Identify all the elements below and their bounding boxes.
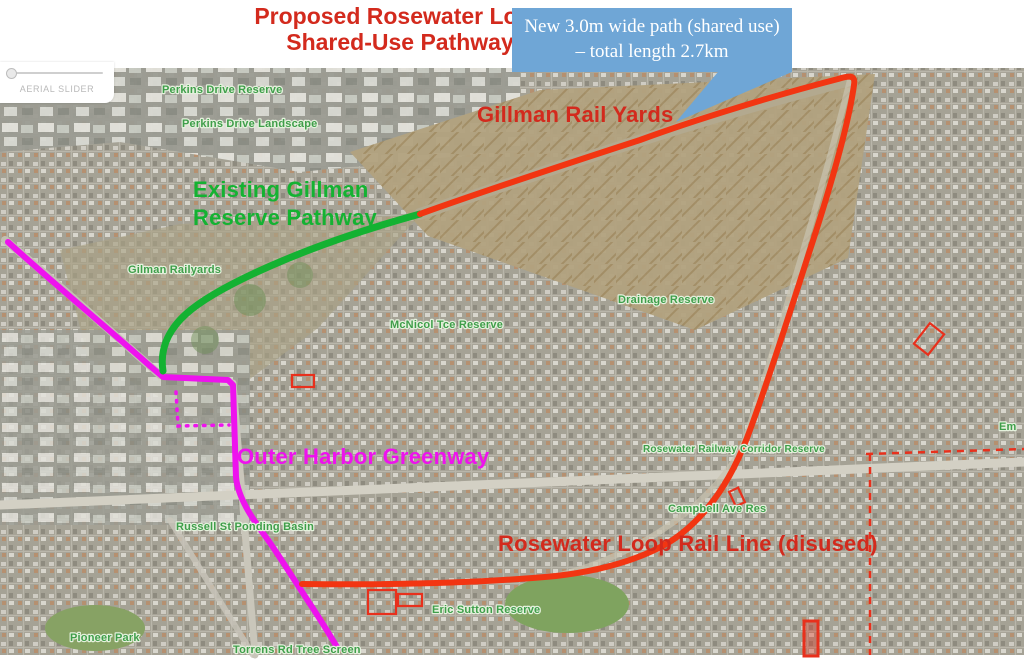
existing-pathway-label-line2: Reserve Pathway	[193, 205, 378, 230]
aerial-slider-label: AERIAL SLIDER	[0, 84, 114, 94]
callout-box: New 3.0m wide path (shared use) – total …	[512, 8, 792, 72]
marker-solid	[804, 621, 818, 656]
place-label: McNicol Tce Reserve	[390, 319, 503, 331]
place-label: Drainage Reserve	[618, 294, 714, 306]
place-label: Perkins Drive Reserve	[162, 84, 282, 96]
callout-text: New 3.0m wide path (shared use) – total …	[524, 15, 780, 64]
tree-patch	[234, 284, 266, 316]
place-label: Pioneer Park	[70, 632, 140, 644]
park-green-patch	[45, 605, 145, 651]
place-label: Rosewater Railway Corridor Reserve	[643, 444, 825, 455]
place-label: Campbell Ave Res	[668, 503, 766, 515]
aerial-map: Perkins Drive Reserve Perkins Drive Land…	[0, 0, 1024, 665]
place-label: Torrens Rd Tree Screen	[233, 644, 361, 656]
aerial-slider-widget: AERIAL SLIDER	[0, 62, 114, 103]
place-label: Perkins Drive Landscape	[182, 118, 317, 130]
aerial-slider-track[interactable]	[9, 72, 103, 74]
place-label: Eric Sutton Reserve	[432, 604, 540, 616]
rosewater-loop-label: Rosewater Loop Rail Line (disused)	[498, 531, 878, 556]
gillman-rail-yards-label: Gillman Rail Yards	[477, 102, 673, 127]
place-label: Russell St Ponding Basin	[176, 521, 314, 533]
existing-pathway-label-line1: Existing Gillman	[193, 177, 369, 202]
place-label: Em	[999, 421, 1017, 433]
aerial-slider-handle[interactable]	[6, 68, 17, 79]
tree-patch	[191, 326, 219, 354]
outer-harbor-greenway-label: Outer Harbor Greenway	[237, 444, 490, 469]
place-label: Gilman Railyards	[128, 264, 221, 276]
tree-patch	[287, 262, 313, 288]
map-figure: Perkins Drive Reserve Perkins Drive Land…	[0, 0, 1024, 665]
